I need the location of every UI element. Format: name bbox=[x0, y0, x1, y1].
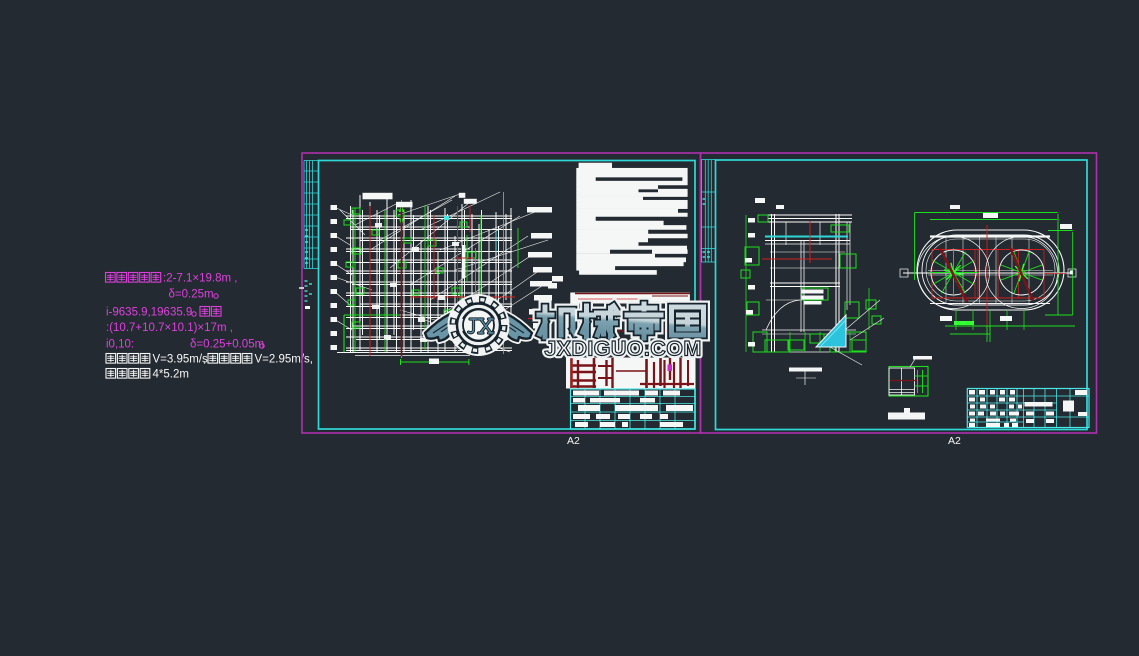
svg-text:JXDIGUO.COM: JXDIGUO.COM bbox=[544, 337, 701, 361]
svg-text:A2: A2 bbox=[948, 435, 961, 447]
svg-text:4*5.2m: 4*5.2m bbox=[153, 369, 189, 381]
svg-text:δ=0.25m: δ=0.25m bbox=[169, 289, 214, 301]
svg-text:i-9635.9,19635.9: i-9635.9,19635.9 bbox=[106, 307, 192, 319]
svg-text:,: , bbox=[203, 354, 206, 366]
svg-text:A2: A2 bbox=[567, 435, 580, 447]
svg-text:i0,10:: i0,10: bbox=[106, 339, 134, 351]
svg-text:V=2.95m/s,: V=2.95m/s, bbox=[255, 354, 314, 366]
svg-text:δ=0.25+0.05m: δ=0.25+0.05m bbox=[190, 339, 264, 351]
svg-text::(10.7+10.7×10.1)×17m ,: :(10.7+10.7×10.1)×17m , bbox=[106, 322, 233, 334]
svg-text:V=3.95m/s: V=3.95m/s bbox=[153, 354, 209, 366]
svg-text::2-7.1×19.8m ,: :2-7.1×19.8m , bbox=[163, 273, 237, 285]
